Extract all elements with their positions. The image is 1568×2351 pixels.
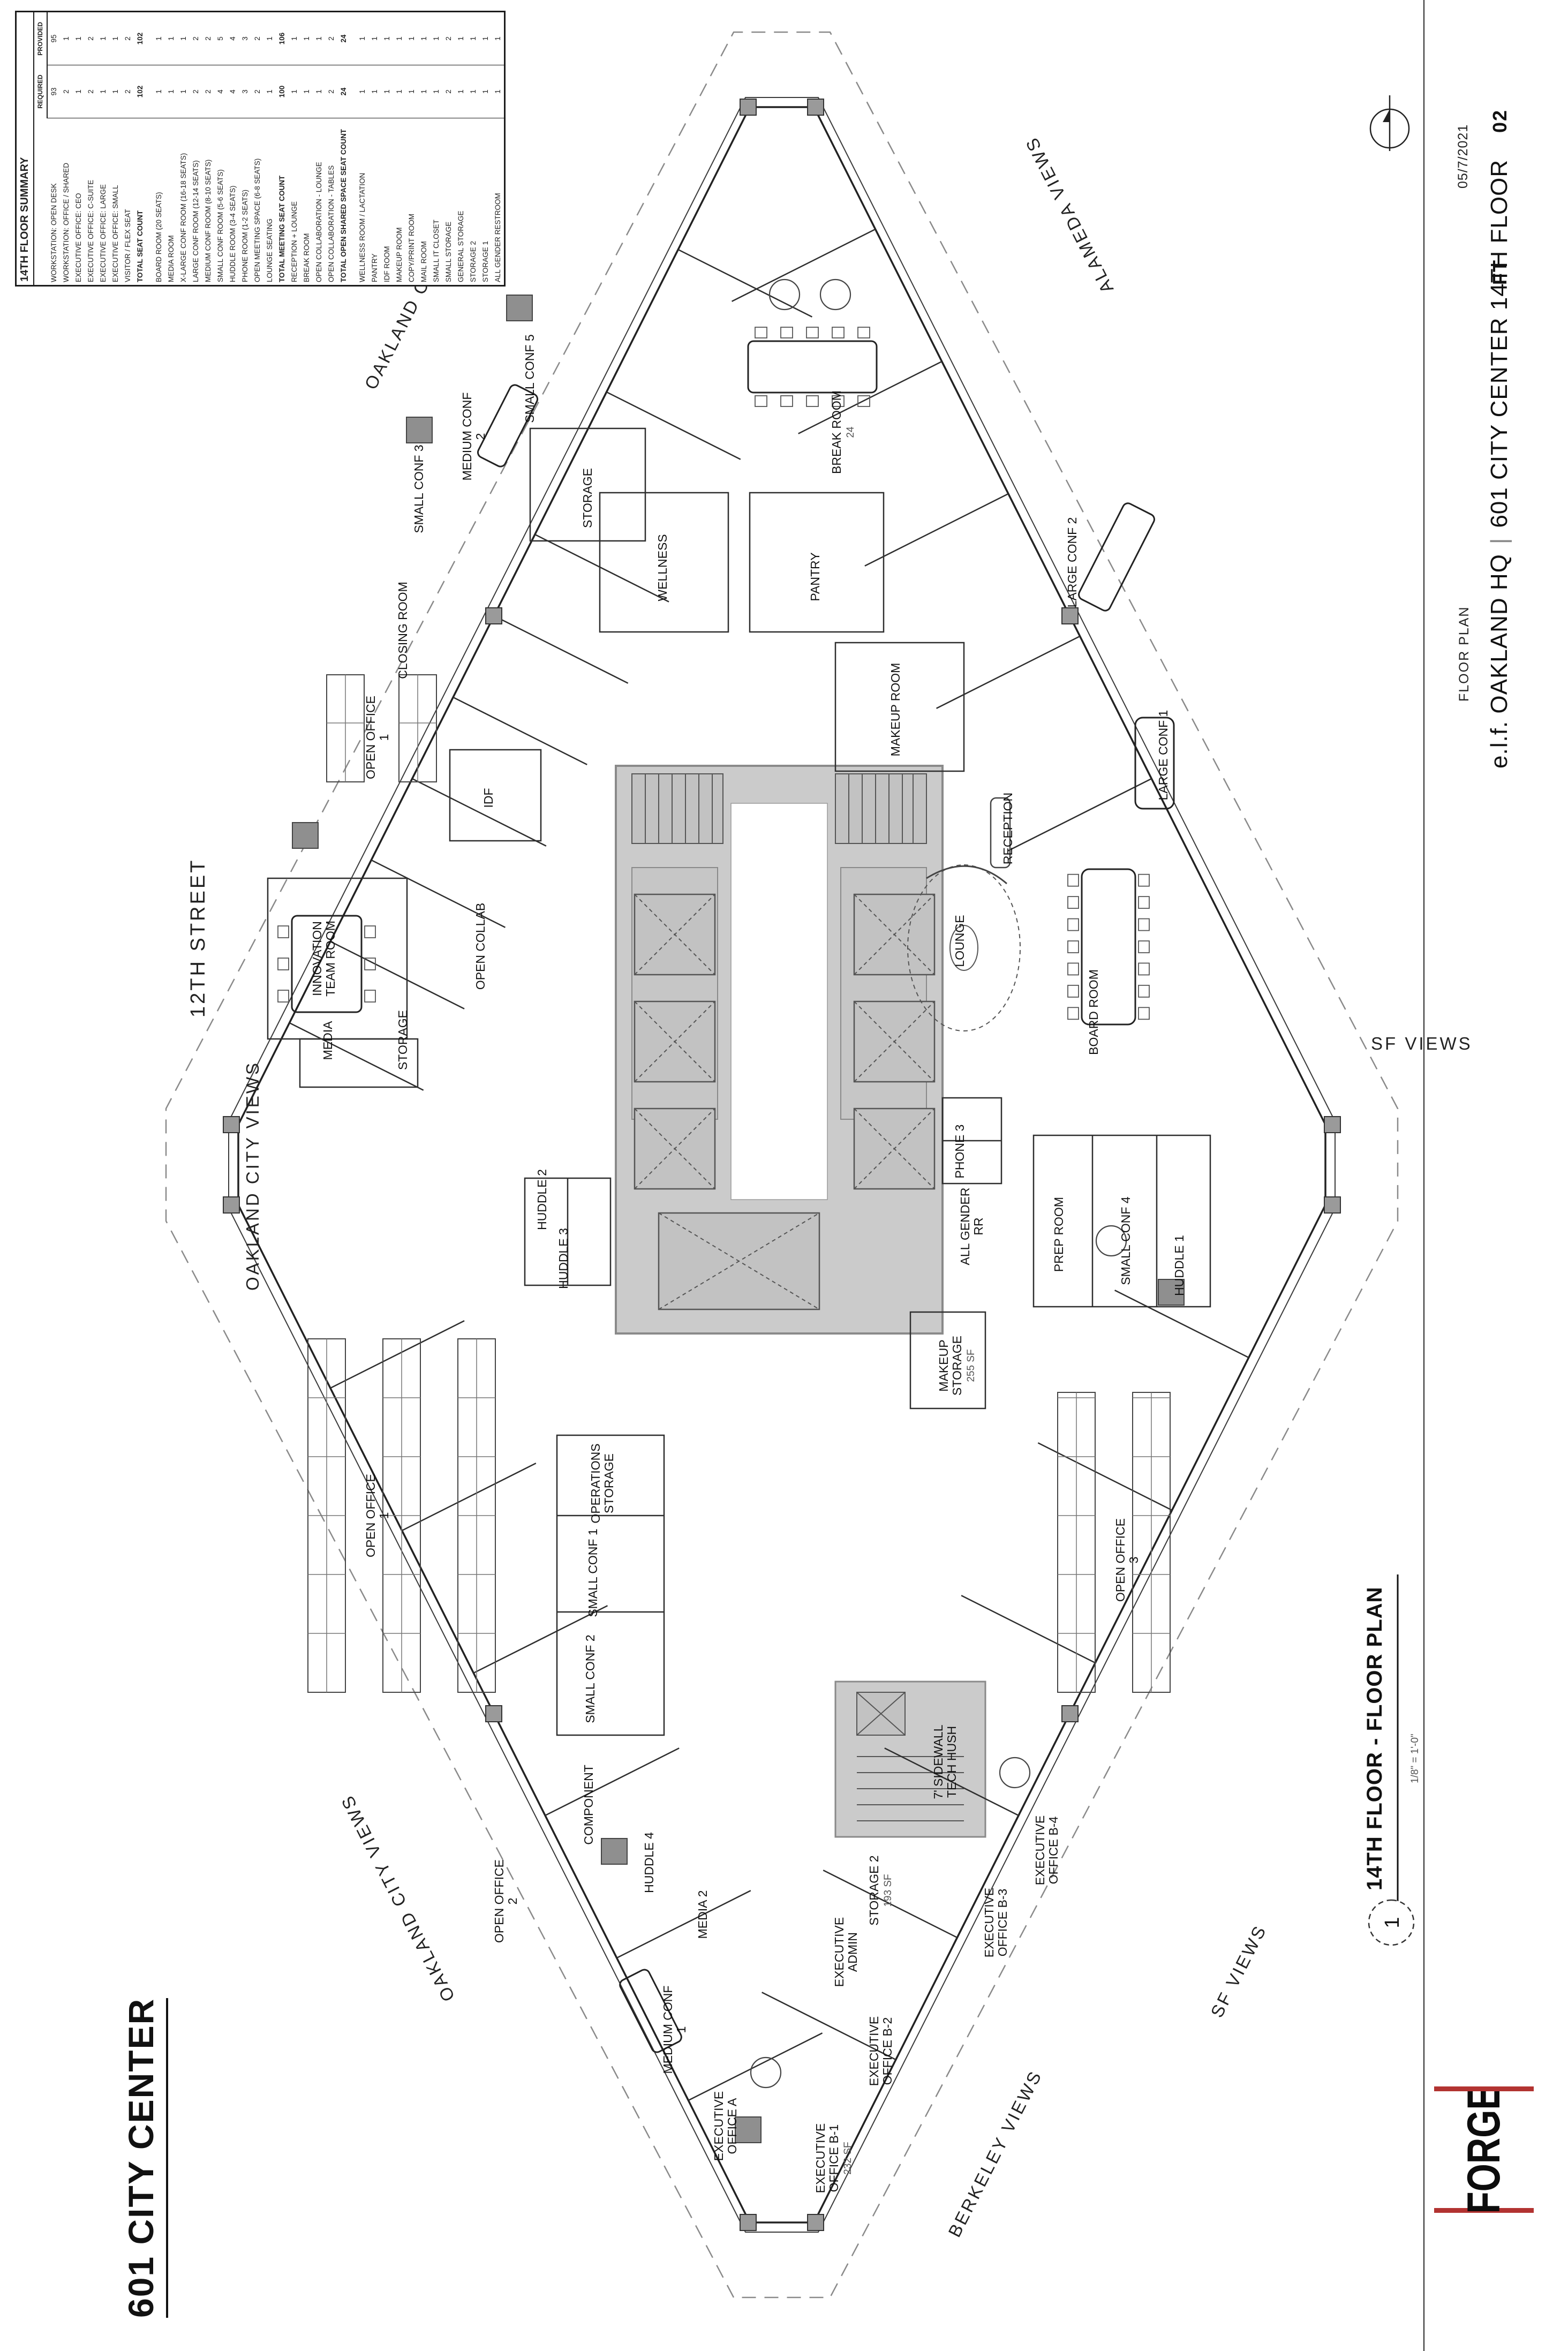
room-label: SMALL CONF 5 — [523, 334, 537, 423]
summary-row: SMALL IT CLOSET11 — [430, 12, 442, 286]
room-label: PREP ROOM — [1052, 1197, 1066, 1272]
room-label: OPEN OFFICE2 — [492, 1859, 519, 1943]
summary-row: WORKSTATION: OPEN DESK9395 — [47, 12, 60, 286]
discipline-label: FLOOR PLAN — [1457, 606, 1472, 702]
project-name: e.l.f. OAKLAND HQ — [1486, 554, 1512, 768]
summary-row: LARGE CONF ROOM (12-14 SEATS)22 — [190, 12, 202, 286]
room-label: STORAGE — [396, 1010, 410, 1070]
summary-row: VISITOR / FLEX SEAT22 — [122, 12, 134, 286]
view-label: ALAMEDA VIEWS — [1021, 133, 1117, 297]
summary-row: MEDIUM CONF ROOM (8-10 SEATS)22 — [202, 12, 214, 286]
room-label: EXECUTIVEOFFICE B-2 — [867, 2016, 894, 2086]
summary-row: BOARD ROOM (20 SEATS)11 — [153, 12, 165, 286]
summary-row: EXECUTIVE OFFICE: LARGE11 — [97, 12, 109, 286]
summary-row: STORAGE 111 — [479, 12, 492, 286]
room-label: HUDDLE 4 — [642, 1832, 656, 1893]
summary-row: HUDDLE ROOM (3-4 SEATS)44 — [227, 12, 239, 286]
summary-row: MAIL ROOM11 — [418, 12, 430, 286]
room-label: INNOVATIONTEAM ROOM — [310, 921, 337, 997]
room-label: LOUNGE — [953, 915, 967, 967]
summary-row: WORKSTATION: OFFICE / SHARED21 — [60, 12, 72, 286]
room-label: EXECUTIVEOFFICE A — [712, 2091, 739, 2161]
summary-row — [350, 12, 356, 286]
floor-plan-drawing: BREAK ROOM24SMALL CONF 5MEDIUM CONF2SMAL… — [0, 0, 1568, 2351]
room-label: HUDDLE 1 — [1172, 1235, 1186, 1296]
summary-row: MEDIA ROOM11 — [165, 12, 177, 286]
drawing-scale: 1/8" = 1'-0" — [1409, 1734, 1421, 1783]
room-label: IDF — [481, 788, 495, 808]
room-label: OPEN OFFICE1 — [364, 696, 391, 779]
north-arrow-icon — [1360, 91, 1419, 155]
summary-row: OPEN COLLABORATION - TABLES22 — [325, 12, 337, 286]
room-label: OPERATIONSSTORAGE — [589, 1443, 616, 1523]
room-label: PHONE 3 — [953, 1125, 967, 1179]
summary-row: SMALL CONF ROOM (5-6 SEATS)45 — [214, 12, 227, 286]
summary-row: EXECUTIVE OFFICE: CEO11 — [72, 12, 85, 286]
floor-summary-table: 14TH FLOOR SUMMARYREQUIREDPROVIDEDWORKST… — [15, 11, 506, 287]
summary-row: OPEN MEETING SPACE (6-8 SEATS)22 — [251, 12, 263, 286]
view-label: SF VIEWS — [1207, 1921, 1270, 2021]
summary-row: TOTAL OPEN SHARED SPACE SEAT COUNT2424 — [337, 12, 350, 286]
room-label: HUDDLE 3 — [556, 1228, 570, 1289]
room-label: MEDIA — [321, 1021, 335, 1060]
summary-row — [146, 12, 153, 286]
summary-row: MAKEUP ROOM11 — [393, 12, 405, 286]
room-label: MEDIUM CONF2 — [460, 393, 487, 481]
room-label: LARGE CONF 1 — [1156, 710, 1170, 801]
room-label: OPEN COLLAB — [473, 903, 487, 990]
room-label: MAKEUP ROOM — [888, 663, 902, 757]
drawing-title-block: 1 14TH FLOOR - FLOOR PLAN 1/8" = 1'-0" — [1328, 1542, 1446, 1960]
sheet-page: 601 CITY CENTER — [0, 0, 1568, 2351]
summary-row: GENERAL STORAGE11 — [455, 12, 467, 286]
view-label: OAKLAND CITY VIEWS — [337, 1791, 459, 2005]
summary-row: EXECUTIVE OFFICE: C-SUITE22 — [85, 12, 97, 286]
summary-row: PANTRY11 — [368, 12, 381, 286]
room-label: CLOSING ROOM — [396, 582, 410, 679]
view-label: 12TH STREET — [187, 858, 209, 1018]
summary-row: RECEPTION + LOUNGE11 — [288, 12, 300, 286]
forge-logo-bar-right — [1434, 2086, 1534, 2091]
view-label: OAKLAND CITY VIEWS — [243, 1061, 262, 1291]
sheet-number: 02 — [1489, 109, 1511, 133]
summary-row: IDF ROOM11 — [381, 12, 393, 286]
summary-row: WELLNESS ROOM / LACTATION11 — [356, 12, 368, 286]
room-label: HUDDLE 2 — [535, 1169, 549, 1230]
summary-row: X-LARGE CONF ROOM (16-18 SEATS)11 — [177, 12, 190, 286]
summary-row: TOTAL MEETING SEAT COUNT100106 — [276, 12, 288, 286]
room-label: WELLNESS — [655, 534, 669, 601]
summary-row: 14TH FLOOR SUMMARY — [16, 12, 34, 286]
room-label: STORAGE — [581, 468, 594, 528]
room-label: RECEPTION — [1001, 793, 1015, 864]
summary-row: TOTAL SEAT COUNT102102 — [134, 12, 146, 286]
title-separator: | — [1486, 528, 1512, 554]
sheet-name: 601 CITY CENTER 14TH FLOOR — [1486, 160, 1512, 528]
room-label: COMPONENT — [582, 1765, 595, 1845]
summary-row: BREAK ROOM11 — [300, 12, 313, 286]
title-strip-divider — [1423, 0, 1424, 2351]
room-label: 7' SIDEWALLTECH HUSH — [931, 1724, 959, 1799]
summary-row: OPEN COLLABORATION - LOUNGE11 — [313, 12, 325, 286]
summary-row: REQUIREDPROVIDED — [34, 12, 47, 286]
room-label: SMALL CONF 1 — [586, 1528, 600, 1617]
summary-row: EXECUTIVE OFFICE: SMALL11 — [109, 12, 122, 286]
issue-date: 05/7/2021 — [1456, 124, 1471, 189]
room-label: BOARD ROOM — [1087, 969, 1100, 1055]
detail-bubble-number: 1 — [1381, 1917, 1404, 1928]
view-label: SF VIEWS — [1371, 1034, 1473, 1053]
summary-row: STORAGE 211 — [467, 12, 479, 286]
sheet-title: e.l.f. OAKLAND HQ|601 CITY CENTER 14TH F… — [1486, 160, 1513, 768]
room-label: LARGE CONF 2 — [1065, 517, 1079, 608]
room-label: PANTRY — [808, 552, 822, 601]
drawing-sheet: 601 CITY CENTER — [0, 0, 1568, 2351]
room-label: SMALL CONF 4 — [1119, 1196, 1133, 1285]
room-label: SMALL CONF 3 — [412, 444, 426, 533]
summary-row: PHONE ROOM (1-2 SEATS)33 — [239, 12, 251, 286]
summary-row: ALL GENDER RESTROOM11 — [492, 12, 505, 286]
room-label: EXECUTIVEOFFICE B-4 — [1033, 1815, 1060, 1885]
summary-row: COPY/PRINT ROOM11 — [405, 12, 418, 286]
room-label: SMALL CONF 2 — [583, 1634, 597, 1723]
drawing-title: 14TH FLOOR - FLOOR PLAN — [1363, 1587, 1386, 1890]
room-label: EXECUTIVEOFFICE B-3 — [982, 1888, 1009, 1957]
forge-logo-text: FORGE — [1458, 2086, 1511, 2214]
room-label: MEDIA 2 — [696, 1890, 710, 1939]
summary-row: SMALL STORAGE22 — [442, 12, 455, 286]
view-label: BERKELEY VIEWS — [944, 2067, 1046, 2240]
sheet-prefix: FT — [1489, 259, 1511, 285]
summary-row: LOUNGE SEATING11 — [263, 12, 276, 286]
forge-logo: FORGE — [1434, 2086, 1534, 2213]
